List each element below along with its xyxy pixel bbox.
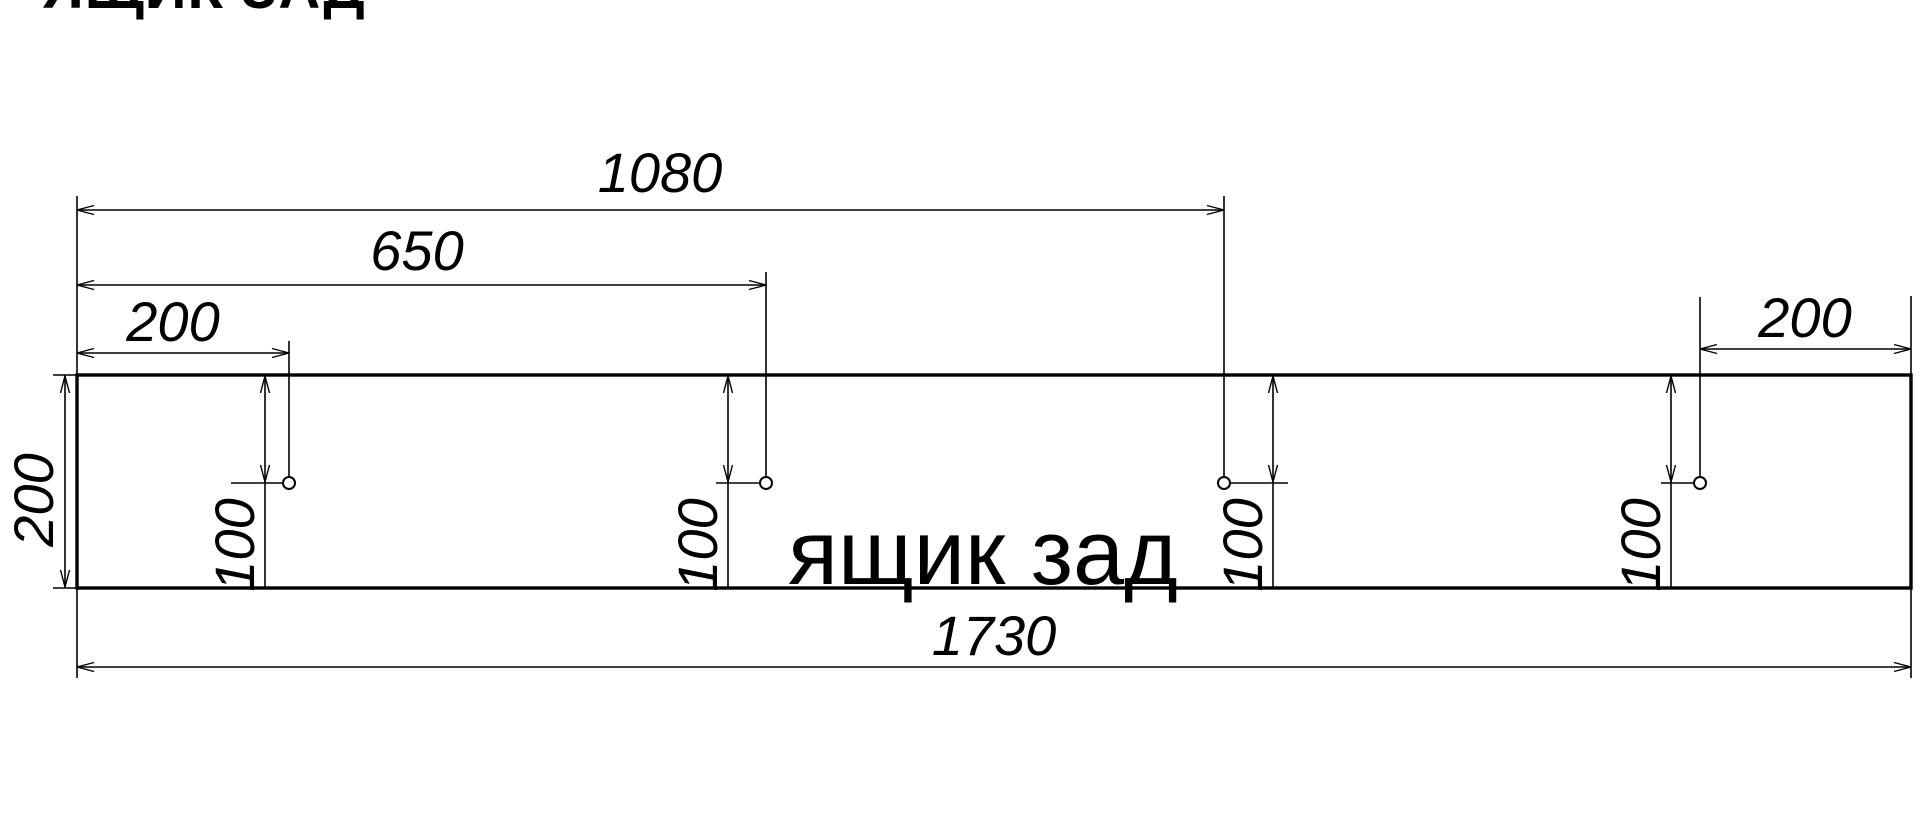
hole-3 — [1218, 477, 1230, 489]
dim-200-top-right-label: 200 — [1757, 286, 1851, 349]
dim-100-hole-3-label: 100 — [1211, 498, 1274, 591]
hole-1 — [283, 477, 295, 489]
hole-4 — [1694, 477, 1706, 489]
dim-100-hole-2-label: 100 — [666, 498, 729, 591]
dim-1080-label: 1080 — [598, 141, 723, 204]
dim-100-hole-1-label: 100 — [203, 498, 266, 591]
dim-650-label: 650 — [370, 219, 463, 282]
hole-2 — [760, 477, 772, 489]
dim-100-hole-4-label: 100 — [1609, 498, 1672, 591]
part-label: ящик зад — [788, 502, 1178, 604]
drawing-stage: ЯЩИК ЗАД 1080650200200200173010010010010… — [0, 0, 1920, 835]
technical-drawing-canvas: 10806502002002001730100100100100ящик зад — [0, 0, 1920, 835]
dim-200-left-height-label: 200 — [2, 453, 65, 547]
dim-200-top-left-label: 200 — [125, 290, 219, 353]
dim-1730-label: 1730 — [932, 604, 1057, 667]
